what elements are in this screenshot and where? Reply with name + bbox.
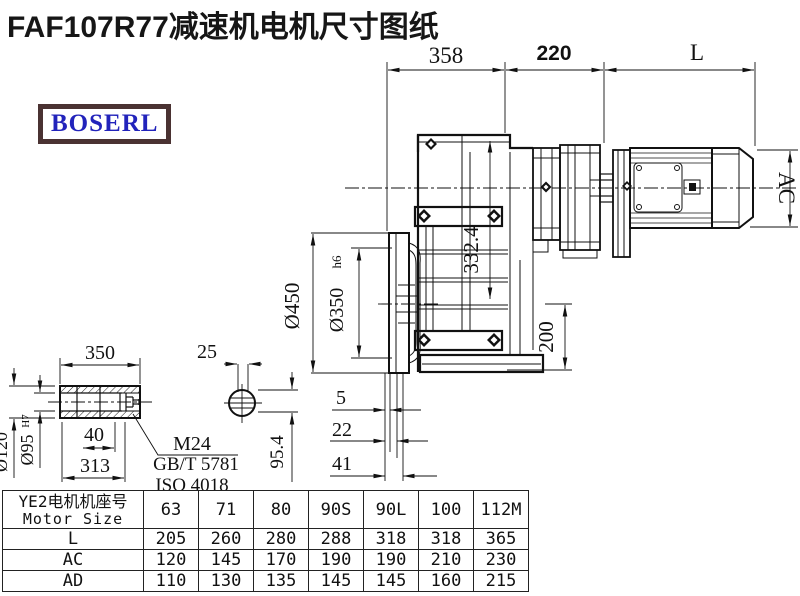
- dim-label-AC: AC: [774, 172, 799, 204]
- table-cell: 230: [474, 550, 529, 571]
- table-cell: 110: [144, 571, 199, 592]
- motor-size-table: YE2电机机座号 Motor Size 63 71 80 90S 90L 100…: [2, 490, 529, 592]
- table-col-112m: 112M: [474, 491, 529, 529]
- dim-label-332-4: 332.4: [459, 226, 483, 274]
- dim-label-shaft-od: Ø120: [0, 432, 11, 472]
- row-label-L: L: [3, 529, 144, 550]
- table-row-L: L 205 260 280 288 318 318 365: [3, 529, 529, 550]
- table-cell: 190: [364, 550, 419, 571]
- dimension-labels: 358 220 L AC 332.4 Ø450 Ø350 h6 200 5 22…: [0, 40, 799, 496]
- dim-label-spigot: Ø350: [326, 288, 348, 332]
- table-cell: 260: [199, 529, 254, 550]
- dim-label-flange-od: Ø450: [280, 283, 304, 330]
- dim-label-22: 22: [332, 419, 352, 441]
- table-cell: 160: [419, 571, 474, 592]
- table-cell: 135: [254, 571, 309, 592]
- dim-label-313: 313: [80, 455, 110, 477]
- dim-label-200: 200: [534, 321, 558, 353]
- dim-label-5: 5: [336, 387, 346, 409]
- table-cell: 120: [144, 550, 199, 571]
- table-row-AC: AC 120 145 170 190 190 210 230: [3, 550, 529, 571]
- table-cell: 210: [419, 550, 474, 571]
- table-cell: 145: [309, 571, 364, 592]
- table-header-motor-size: YE2电机机座号 Motor Size: [3, 491, 144, 529]
- table-col-100: 100: [419, 491, 474, 529]
- input-end-cover: [533, 148, 560, 252]
- dim-label-bore: Ø95: [17, 435, 37, 466]
- dim-label-40: 40: [84, 424, 104, 446]
- dim-label-95-4: 95.4: [267, 435, 288, 469]
- table-cell: 318: [364, 529, 419, 550]
- table-row-AD: AD 110 130 135 145 145 160 215: [3, 571, 529, 592]
- table-col-63: 63: [144, 491, 199, 529]
- callout-gbt5781: GB/T 5781: [153, 454, 239, 475]
- dim-label-350: 350: [85, 342, 115, 364]
- dim-label-358: 358: [429, 43, 464, 68]
- dim-label-spigot-tol: h6: [329, 255, 344, 269]
- table-header-en: Motor Size: [3, 511, 143, 527]
- motor-adapter: [560, 145, 600, 258]
- table-col-80: 80: [254, 491, 309, 529]
- dim-label-220: 220: [536, 42, 571, 65]
- table-cell: 145: [364, 571, 419, 592]
- table-cell: 190: [309, 550, 364, 571]
- dim-label-41: 41: [332, 453, 352, 475]
- table-header-row: YE2电机机座号 Motor Size 63 71 80 90S 90L 100…: [3, 491, 529, 529]
- dim-label-25: 25: [197, 341, 217, 363]
- dim-label-L: L: [690, 40, 704, 65]
- table-cell: 280: [254, 529, 309, 550]
- row-label-AD: AD: [3, 571, 144, 592]
- table-cell: 145: [199, 550, 254, 571]
- table-header-zh: YE2电机机座号: [3, 492, 143, 511]
- table-col-90l: 90L: [364, 491, 419, 529]
- row-label-AC: AC: [3, 550, 144, 571]
- shaft-end-view: [224, 384, 262, 423]
- motor-flange: [613, 150, 630, 257]
- dim-label-bore-tol: H7: [20, 414, 32, 428]
- motor-nameplate: [689, 183, 696, 191]
- table-cell: 215: [474, 571, 529, 592]
- table-cell: 318: [419, 529, 474, 550]
- table-cell: 205: [144, 529, 199, 550]
- table-col-90s: 90S: [309, 491, 364, 529]
- table-cell: 130: [199, 571, 254, 592]
- table-col-71: 71: [199, 491, 254, 529]
- table-cell: 288: [309, 529, 364, 550]
- callout-m24: M24: [173, 433, 211, 455]
- table-cell: 365: [474, 529, 529, 550]
- output-flange-outline: [389, 233, 409, 373]
- table-cell: 170: [254, 550, 309, 571]
